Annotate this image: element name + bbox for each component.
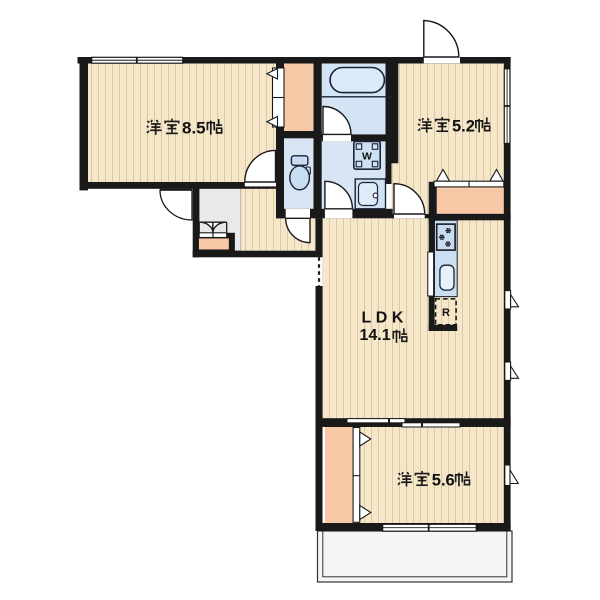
svg-text:8.5: 8.5 (182, 119, 206, 138)
svg-text:5.2: 5.2 (452, 118, 475, 136)
svg-text:5.6: 5.6 (432, 472, 455, 490)
svg-text:14.1: 14.1 (360, 327, 391, 344)
svg-text:R: R (442, 307, 450, 319)
svg-text:LDK: LDK (362, 310, 408, 327)
svg-text:W: W (362, 151, 372, 163)
